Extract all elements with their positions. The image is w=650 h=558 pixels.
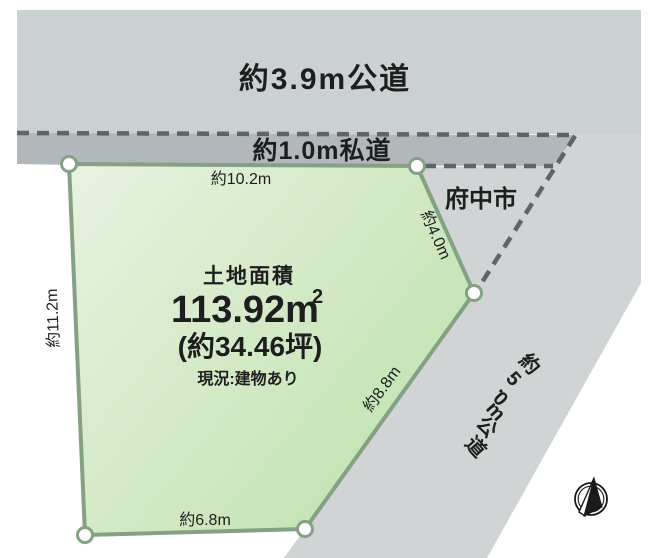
dim-left-label: 約11.2m [43,288,63,348]
plot-area-tsubo: (約34.46坪) [178,330,323,362]
land-plot-svg: 約3.9m公道 約1.0m私道 府中市 約5.0m公道 約10.2m 約11.2… [0,0,650,558]
top-road-label: 約3.9m公道 [239,63,411,96]
north-compass-icon [575,478,607,516]
private-road-label: 約1.0m私道 [253,136,392,165]
vertex-marker-top-left [62,157,77,172]
plot-area-superscript: 2 [312,286,323,308]
vertex-marker-bottom-right [298,522,313,537]
plot-status-label: 現況:建物あり [197,369,298,388]
plot-area-value: 113.92m [171,289,319,331]
vertex-marker-top-right [410,159,425,174]
plot-area-title: 土地面積 [203,264,295,288]
city-label: 府中市 [445,185,517,213]
dim-bottom-label: 約6.8m [179,511,231,529]
vertex-marker-bottom-left [78,528,93,543]
dim-top-label: 約10.2m [211,170,271,188]
vertex-marker-right [467,286,482,301]
land-plot-diagram: 約3.9m公道 約1.0m私道 府中市 約5.0m公道 約10.2m 約11.2… [0,0,650,558]
